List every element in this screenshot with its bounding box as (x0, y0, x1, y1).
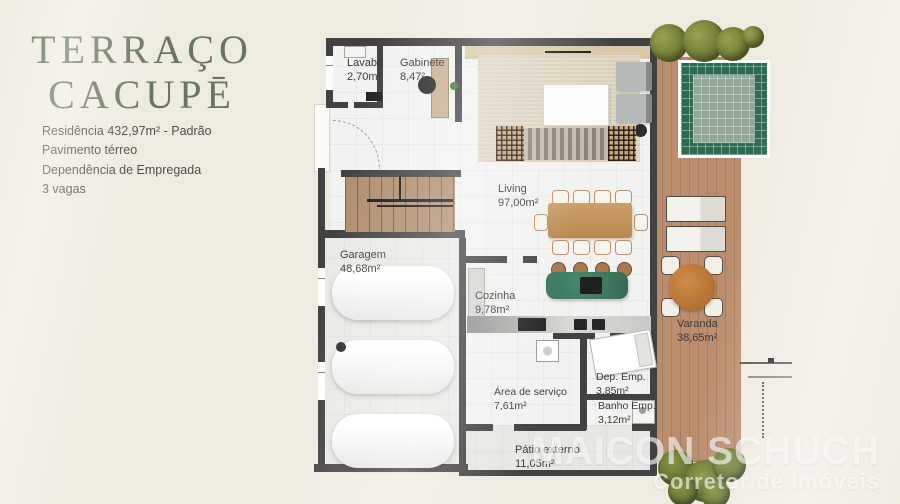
detail-floor: Pavimento térreo (42, 141, 212, 160)
watermark-role: Corretor de Imóveis (653, 469, 880, 495)
project-title-line1: TERRAÇO (12, 28, 272, 73)
window (318, 362, 325, 400)
dining-table (548, 203, 632, 238)
pool (678, 60, 770, 158)
pillow (634, 332, 654, 367)
window (326, 56, 333, 90)
watermark-name: MAICON SCHUCH (531, 430, 880, 474)
room-label-varanda: Varanda 38,65m² (677, 317, 718, 346)
wall (523, 256, 537, 263)
room-label-banho-emp: Banho Emp. 3,12m² (598, 400, 656, 427)
armchair (616, 62, 652, 91)
room-label-gabinete: Gabinete 8,47² (400, 56, 445, 85)
room-label-area-servico: Área de serviço 7,61m² (494, 386, 567, 413)
stair-divider (399, 177, 401, 201)
wall (465, 424, 493, 431)
project-title-line2: CACUPĒ (12, 73, 272, 118)
staircase (345, 177, 455, 232)
console-detail (545, 51, 591, 53)
dining-chair (552, 240, 569, 255)
window (318, 268, 325, 306)
lattice-side-table (608, 126, 636, 161)
plant (450, 82, 458, 90)
project-details: Residência 432,97m² - Padrão Pavimento t… (42, 122, 212, 200)
wall (341, 170, 461, 177)
wall (465, 256, 507, 263)
column (336, 342, 346, 352)
lounger (666, 226, 726, 252)
lattice-side-table (496, 126, 524, 161)
dining-chair (594, 240, 611, 255)
stair-rail (367, 199, 453, 202)
entry-pad (314, 104, 330, 172)
boundary-line (748, 376, 792, 378)
project-title: TERRAÇO CACUPĒ (12, 28, 272, 118)
car (332, 414, 454, 468)
stair-rail (377, 205, 453, 207)
washing-machine (536, 340, 559, 362)
dining-chair (573, 240, 590, 255)
detail-parking: 3 vagas (42, 180, 212, 199)
room-label-lavabo: Lavabo 2,70m² (347, 56, 383, 85)
sofa (524, 128, 608, 160)
island-sink (580, 277, 602, 294)
detail-dependency: Dependência de Empregada (42, 161, 212, 180)
dining-chair (634, 214, 648, 231)
stove (518, 318, 546, 331)
round-table (669, 264, 715, 310)
kitchen-island (546, 272, 628, 299)
dining-chair (615, 240, 632, 255)
wall (318, 168, 325, 236)
coffee-table (543, 84, 609, 126)
lavabo-toilet (366, 92, 382, 101)
room-label-living: Living 97,00m² (498, 182, 538, 211)
tree-icon (742, 26, 764, 48)
boundary-line (740, 362, 792, 364)
room-label-dep-emp: Dep. Emp. 3,85m² (596, 371, 646, 398)
wall (553, 333, 595, 339)
wall (459, 238, 466, 472)
sink-basin (592, 319, 605, 330)
wall (580, 339, 587, 430)
dining-chair (534, 214, 548, 231)
pool-inner (693, 75, 755, 143)
room-label-garagem: Garagem 48,68m² (340, 248, 386, 277)
car (332, 340, 454, 394)
page-canvas: TERRAÇO CACUPĒ Residência 432,97m² - Pad… (0, 0, 900, 504)
wall (326, 102, 348, 108)
kitchen-counter (467, 316, 651, 333)
armchair (616, 94, 652, 123)
lounger (666, 196, 726, 222)
boundary-mark (768, 358, 774, 363)
room-label-cozinha: Cozinha 9,78m² (475, 289, 515, 318)
sink-basin (574, 319, 587, 330)
detail-residence: Residência 432,97m² - Padrão (42, 122, 212, 141)
